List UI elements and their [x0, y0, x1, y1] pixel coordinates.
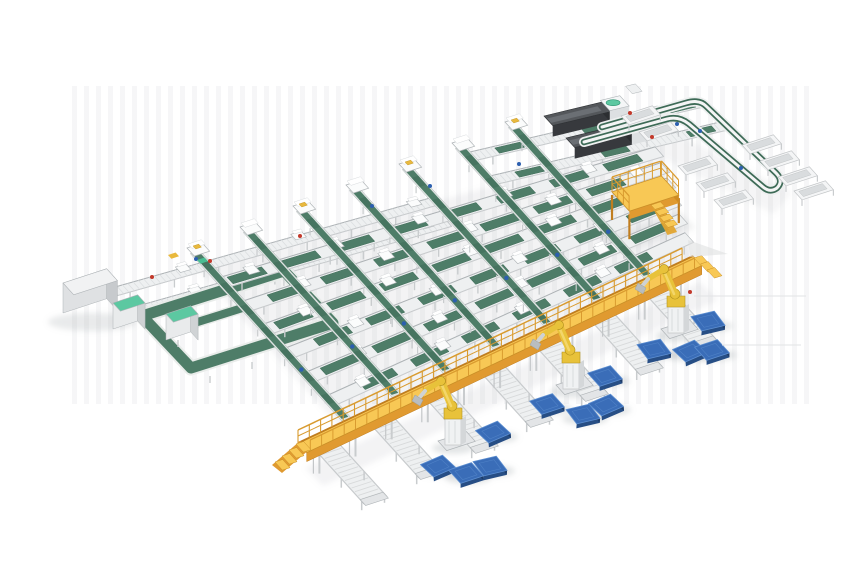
blue-indicator-dot	[698, 129, 702, 133]
walkway-stairs	[272, 441, 311, 473]
red-indicator-dot	[150, 275, 154, 279]
red-indicator-dot	[628, 111, 632, 115]
facility-render-canvas	[0, 0, 860, 580]
control-cabinet	[113, 295, 145, 329]
discharge-tray	[714, 190, 753, 215]
red-indicator-dot	[650, 135, 654, 139]
package-on-belt	[168, 253, 179, 259]
blue-indicator-dot	[517, 162, 521, 166]
discharge-tray	[794, 181, 833, 206]
blue-indicator-dot	[739, 166, 743, 170]
blue-indicator-dot	[370, 204, 374, 208]
red-indicator-dot	[208, 259, 212, 263]
red-indicator-dot	[298, 234, 302, 238]
blue-indicator-dot	[428, 184, 432, 188]
facility-render	[0, 0, 860, 580]
infeed-machine	[63, 269, 117, 313]
red-indicator-dot	[688, 290, 692, 294]
blue-indicator-dot	[675, 122, 679, 126]
